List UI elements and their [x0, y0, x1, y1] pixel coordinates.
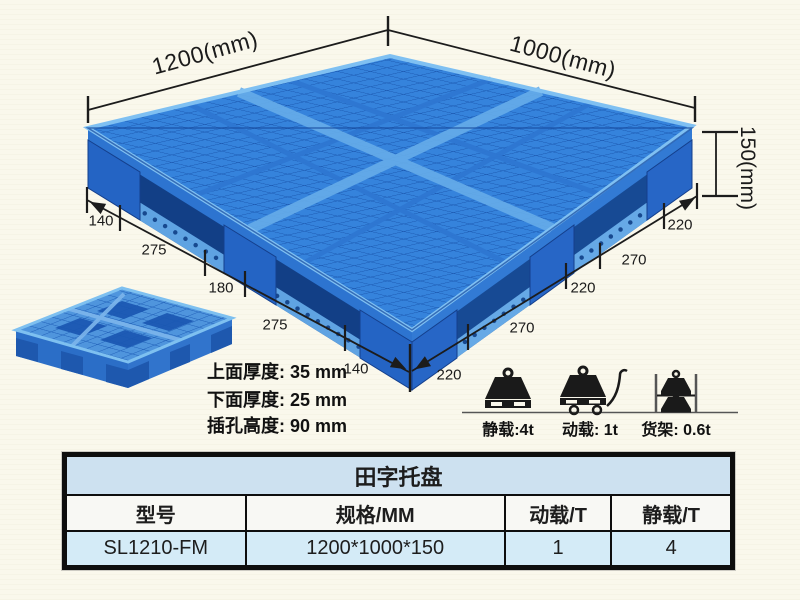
note-bottom-thickness: 下面厚度: 25 mm — [207, 386, 347, 412]
static-load-label: 静载:4t — [482, 416, 534, 440]
col-header-static-load: 静载/T — [611, 495, 731, 531]
load-icons — [462, 367, 738, 414]
right-chain-dim-2: 270 — [509, 320, 534, 337]
pallet-product-sheet: 1200(mm) 1000(mm) 150(mm) 140 275 180 27… — [0, 0, 800, 600]
cell-static-load: 4 — [611, 531, 731, 566]
col-header-spec: 规格/MM — [246, 495, 505, 531]
right-chain-dim-3: 220 — [570, 280, 595, 297]
note-top-thickness: 上面厚度: 35 mm — [207, 358, 347, 384]
dim-height-label: 150(mm) — [735, 126, 759, 210]
col-header-model: 型号 — [66, 495, 246, 531]
dynamic-load-icon — [560, 367, 627, 414]
left-chain-dim-1: 140 — [88, 213, 113, 230]
rack-load-icon — [656, 371, 696, 413]
cell-spec: 1200*1000*150 — [246, 531, 505, 566]
cell-dynamic-load: 1 — [505, 531, 611, 566]
static-load-icon — [485, 369, 531, 408]
left-chain-dim-3: 180 — [208, 280, 233, 297]
right-chain-dim-1: 220 — [436, 367, 461, 384]
left-chain-dim-5: 140 — [343, 361, 368, 378]
note-fork-height: 插孔高度: 90 mm — [207, 412, 347, 438]
right-chain-dim-4: 270 — [621, 252, 646, 269]
table-title: 田字托盘 — [66, 456, 731, 495]
left-chain-dim-4: 275 — [262, 317, 287, 334]
spec-table: 田字托盘 型号 规格/MM 动载/T 静载/T SL1210-FM 1200*1… — [62, 452, 735, 570]
cell-model: SL1210-FM — [66, 531, 246, 566]
rack-load-label: 货架: 0.6t — [641, 416, 710, 440]
left-chain-dim-2: 275 — [141, 242, 166, 259]
col-header-dynamic-load: 动载/T — [505, 495, 611, 531]
inset-pallet — [16, 288, 232, 388]
right-chain-dim-5: 220 — [667, 217, 692, 234]
dynamic-load-label: 动载: 1t — [562, 416, 618, 440]
table-row: SL1210-FM 1200*1000*150 1 4 — [66, 531, 731, 566]
